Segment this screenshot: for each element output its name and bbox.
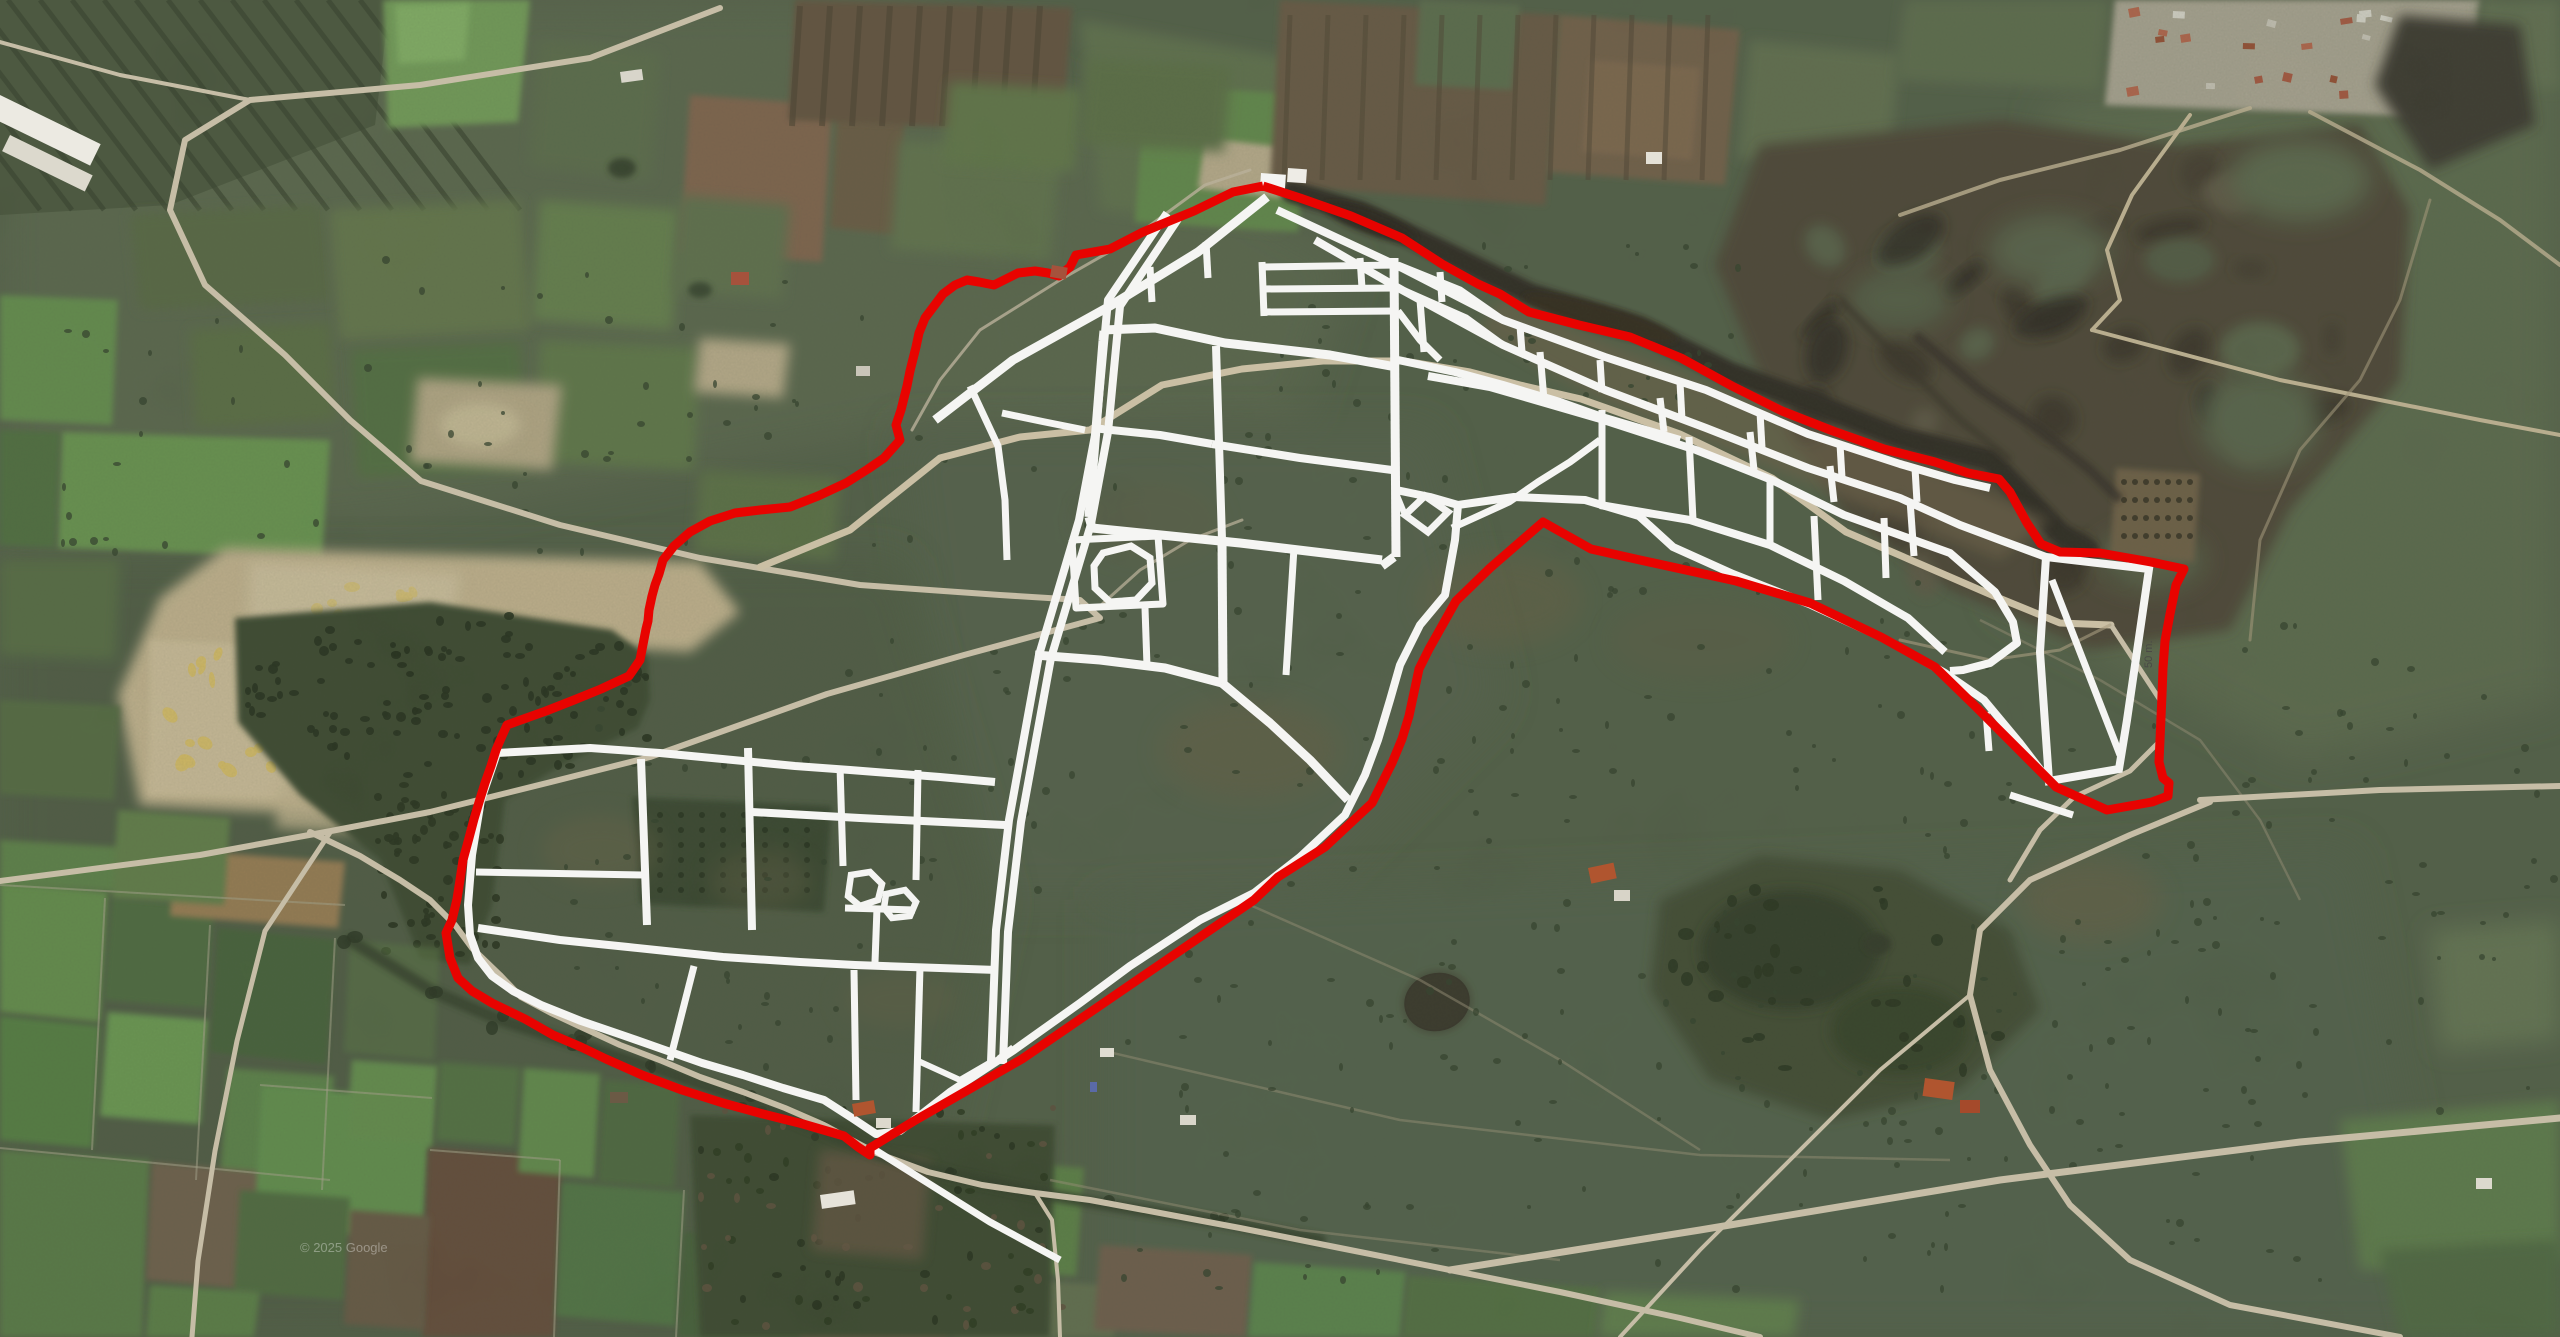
svg-text:© 2025 Google: © 2025 Google	[300, 1240, 388, 1255]
svg-text:50 m.: 50 m.	[2143, 640, 2155, 668]
